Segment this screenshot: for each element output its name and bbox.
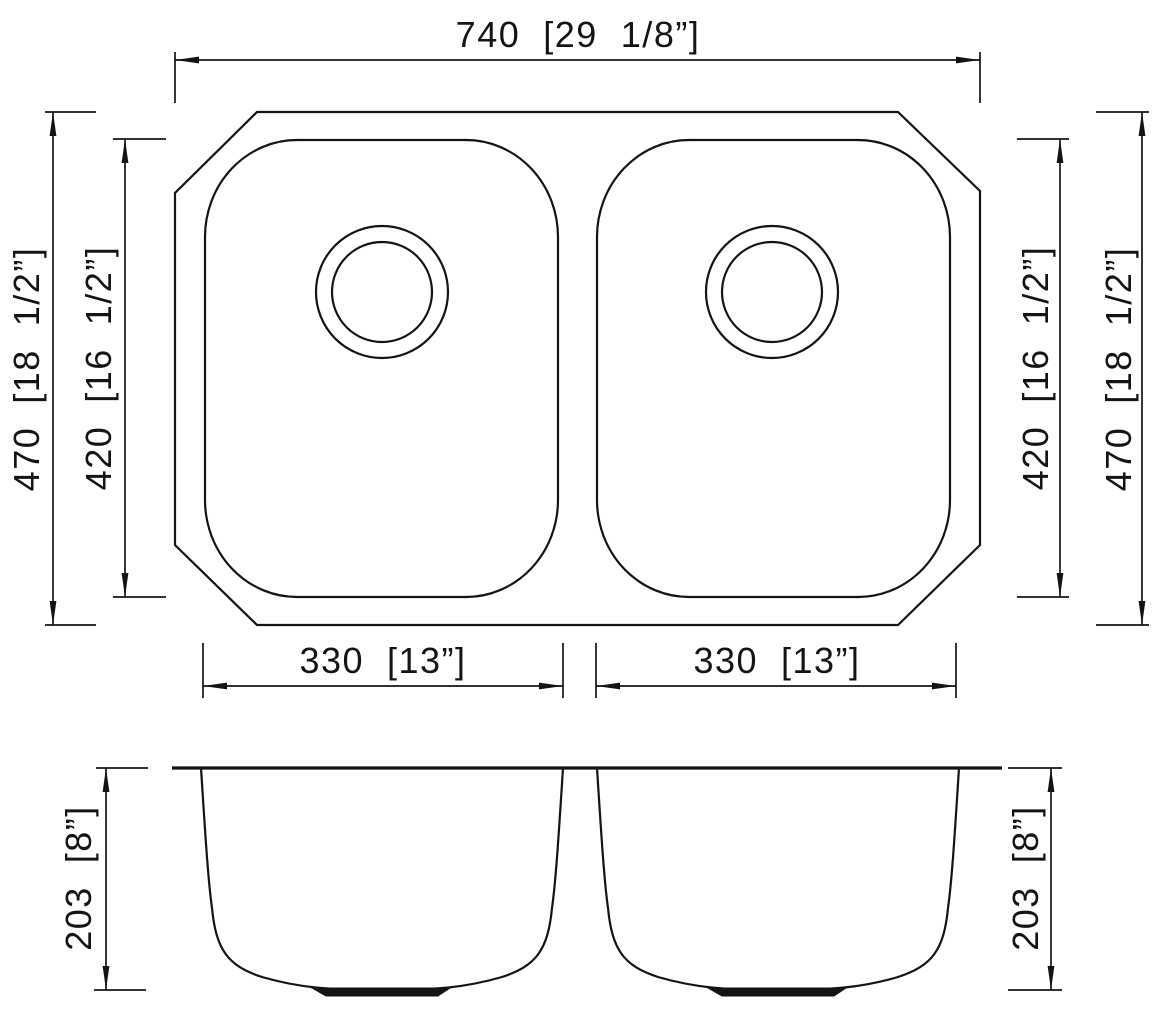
- front-view: [172, 768, 1002, 996]
- front-right-drain-flange: [708, 988, 846, 996]
- dim-text-left-bowl-width: 330 [13”]: [299, 643, 466, 679]
- left-drain-inner-circle: [332, 242, 432, 342]
- sink-technical-drawing: 740 [29 1/8”] 470 [18 1/2”] 420 [16 1/2”…: [0, 0, 1165, 1017]
- right-bowl-outline: [597, 140, 950, 597]
- dim-text-bowl-depth-right: 203 [8”]: [1008, 805, 1044, 951]
- dim-text-outer-height-left: 470 [18 1/2”]: [9, 247, 45, 492]
- left-bowl-outline: [205, 140, 558, 597]
- dim-text-overall-width: 740 [29 1/8”]: [456, 17, 701, 53]
- front-right-bowl-profile: [597, 768, 959, 990]
- right-drain-inner-circle: [722, 242, 822, 342]
- dim-text-right-bowl-width: 330 [13”]: [693, 643, 860, 679]
- left-drain-outer-circle: [316, 226, 448, 358]
- drawing-linework: [0, 0, 1165, 1017]
- dim-text-inner-height-left: 420 [16 1/2”]: [81, 246, 117, 491]
- front-view-dimensions: [94, 768, 1062, 990]
- dim-text-bowl-depth-left: 203 [8”]: [61, 805, 97, 951]
- sink-rim-outline: [175, 112, 980, 625]
- dim-text-outer-height-right: 470 [18 1/2”]: [1101, 247, 1137, 492]
- dim-text-inner-height-right: 420 [16 1/2”]: [1018, 246, 1054, 491]
- top-view: [175, 112, 980, 625]
- front-left-drain-flange: [312, 988, 450, 996]
- right-drain-outer-circle: [706, 226, 838, 358]
- front-left-bowl-profile: [201, 768, 563, 990]
